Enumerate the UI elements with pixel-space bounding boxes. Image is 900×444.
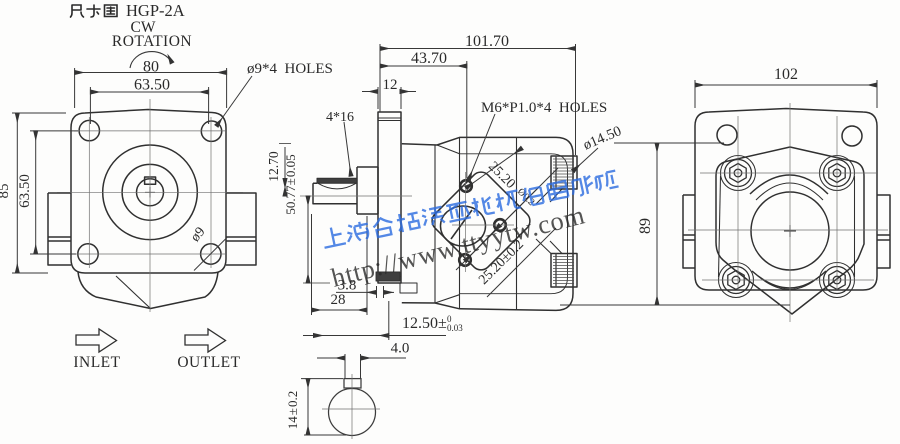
svg-text:63.50: 63.50: [17, 174, 33, 208]
svg-text:M6*P1.0*4 HOLES: M6*P1.0*4 HOLES: [481, 100, 607, 116]
svg-text:INLET: INLET: [73, 354, 120, 371]
svg-text:12.50±: 12.50±: [402, 315, 447, 332]
svg-text:101.70: 101.70: [465, 33, 509, 50]
svg-text:63.50: 63.50: [134, 77, 170, 94]
svg-text:4.0: 4.0: [391, 341, 410, 357]
svg-text:80: 80: [143, 59, 159, 76]
svg-text:OUTLET: OUTLET: [177, 354, 240, 371]
svg-text:85: 85: [0, 184, 12, 199]
svg-text:0.03: 0.03: [447, 323, 463, 333]
svg-text:ø9*4 HOLES: ø9*4 HOLES: [247, 61, 333, 77]
svg-text:102: 102: [774, 66, 798, 83]
svg-text:89: 89: [637, 218, 654, 234]
svg-text:ROTATION: ROTATION: [112, 33, 192, 50]
svg-text:12.70: 12.70: [266, 151, 281, 182]
svg-text:14 ± 0.2: 14 ± 0.2: [285, 391, 300, 430]
svg-text:12: 12: [383, 77, 398, 93]
svg-text:43.70: 43.70: [411, 50, 447, 67]
svg-text:4*16: 4*16: [326, 110, 354, 125]
svg-text:28: 28: [331, 292, 346, 308]
svg-text:HGP-2A: HGP-2A: [126, 1, 185, 20]
